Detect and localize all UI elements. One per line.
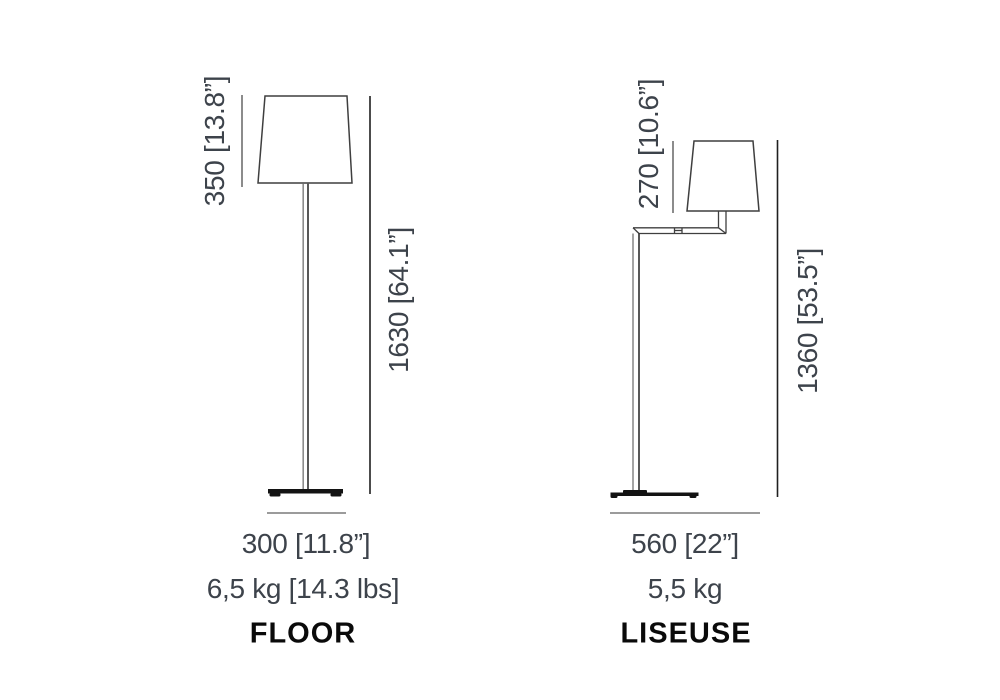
liseuse-lamp-arm-corner: [719, 228, 727, 234]
liseuse-name-label: LISEUSE: [620, 618, 751, 651]
liseuse-shade-height-dimension: 270 [10.6”]: [633, 79, 665, 210]
lamp-dimension-diagram: 350 [13.8”] 1630 [64.1”] 300 [11.8”] 6,5…: [0, 0, 1000, 700]
liseuse-lamp-shade: [687, 141, 759, 211]
diagram-linework: [0, 0, 1000, 700]
floor-shade-height-dimension: 350 [13.8”]: [199, 76, 231, 207]
floor-lamp-shade: [258, 96, 352, 183]
liseuse-lamp-base-foot: [611, 495, 618, 498]
floor-lamp-base: [268, 489, 343, 494]
liseuse-width-dimension: 560 [22”]: [631, 528, 739, 560]
floor-name-label: FLOOR: [250, 618, 357, 651]
floor-lamp-drawing: [258, 96, 352, 497]
liseuse-total-height-dimension: 1360 [53.5”]: [792, 248, 824, 394]
floor-total-height-dimension: 1630 [64.1”]: [383, 227, 415, 373]
floor-weight: 6,5 kg [14.3 lbs]: [207, 573, 400, 605]
floor-lamp-base-foot: [270, 493, 281, 497]
floor-lamp-base-foot: [331, 493, 342, 497]
liseuse-lamp-arm-elbow: [633, 228, 639, 234]
liseuse-lamp-base-foot: [690, 495, 697, 498]
floor-base-width-dimension: 300 [11.8”]: [242, 528, 371, 560]
liseuse-weight: 5,5 kg: [648, 573, 722, 605]
liseuse-lamp-base-hub: [623, 490, 647, 496]
